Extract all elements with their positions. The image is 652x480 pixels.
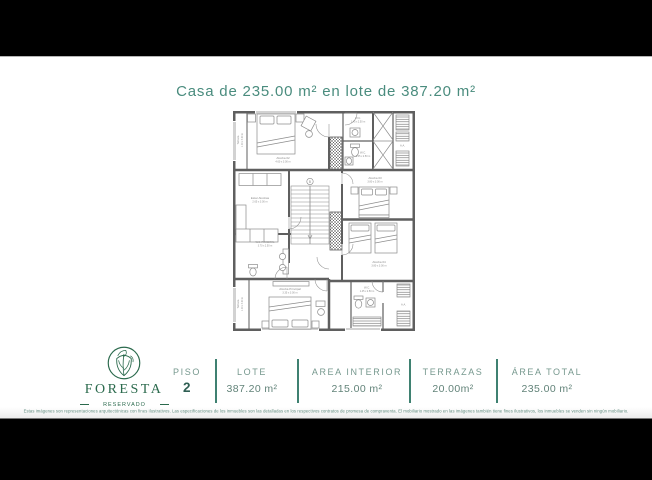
brand-subtitle: RESERVADO [103, 401, 146, 407]
slide-content: Casa de 235.00 m² en lote de 387.20 m² [0, 56, 652, 419]
floor-plan: Terraza 1.00 x 3.00 m Alcoba 02 4.60 x 3… [233, 111, 415, 331]
label-wc-mid-dims: 1.45 x 2.50 m [356, 155, 371, 158]
label-wc-principal-dims: 3.70 x 2.50 m [258, 245, 273, 248]
divider-3 [409, 359, 411, 403]
piso-label: PISO [173, 367, 201, 377]
summary-col-area-interior: AREA INTERIOR 215.00 m² [312, 367, 402, 395]
label-aa-top: A.A. [400, 144, 405, 148]
area-interior-value: 215.00 m² [312, 383, 402, 395]
label-wc-principal: W.C. PRINCIPAL [255, 241, 275, 244]
label-alcoba-03: Alcoba 03 [368, 176, 382, 180]
brand-subtitle-row: RESERVADO [78, 400, 170, 409]
label-wc-top-dims: 1.45 x 2.50 m [351, 120, 366, 123]
stairs [291, 186, 329, 244]
label-terraza-top: Terraza [236, 135, 240, 144]
subtitle-rule-left [80, 404, 89, 405]
summary-col-piso: PISO 2 [173, 367, 201, 395]
piso-value: 2 [173, 380, 201, 395]
subtitle-rule-right [160, 404, 169, 405]
area-total-value: 235.00 m² [512, 383, 583, 395]
label-terraza-top-dims: 1.00 x 3.00 m [242, 133, 244, 147]
summary-col-lote: LOTE 387.20 m² [227, 367, 278, 395]
label-terraza-bottom: Terraza [236, 299, 240, 308]
label-alcoba-02: Alcoba 02 [276, 156, 290, 160]
summary-col-area-total: ÁREA TOTAL 235.00 m² [512, 367, 583, 395]
label-estar: Estar Alcobas [251, 196, 270, 200]
disclaimer-text: Estas imágenes son representaciones arqu… [24, 409, 629, 414]
divider-1 [215, 359, 217, 403]
terrazas-value: 20.00m² [423, 383, 484, 395]
brand-name: FORESTA [78, 382, 170, 398]
area-total-label: ÁREA TOTAL [512, 367, 583, 377]
divider-2 [297, 359, 299, 403]
label-wc-bottom-dims: 1.45 x 2.50 m [360, 290, 375, 293]
marker-b: B [309, 180, 311, 184]
label-alcoba-04: Alcoba 04 [372, 260, 386, 264]
plan-shafts [330, 137, 342, 250]
terrazas-label: TERRAZAS [423, 367, 484, 377]
area-interior-label: AREA INTERIOR [312, 367, 402, 377]
summary-col-terrazas: TERRAZAS 20.00m² [423, 367, 484, 395]
label-wc-mid: W.C. [360, 151, 366, 155]
page-title: Casa de 235.00 m² en lote de 387.20 m² [0, 83, 652, 100]
label-alcoba-principal-dims: 3.35 x 3.00 m [282, 292, 297, 295]
label-alcoba-principal: Alcoba Principal [279, 287, 301, 291]
lote-label: LOTE [227, 367, 278, 377]
label-aa-bottom: A.A. [401, 303, 406, 307]
label-alcoba-04-dims: 3.80 x 3.00 m [371, 265, 386, 268]
foresta-emblem-icon [106, 345, 142, 381]
floor-plan-svg: Terraza 1.00 x 3.00 m Alcoba 02 4.60 x 3… [233, 111, 415, 331]
label-alcoba-03-dims: 3.80 x 3.00 m [367, 181, 382, 184]
brand-logo: FORESTA RESERVADO [78, 345, 170, 409]
label-alcoba-02-dims: 4.60 x 3.00 m [275, 161, 290, 164]
divider-4 [496, 359, 498, 403]
label-terraza-bottom-dims: 1.00 x 3.00 m [242, 297, 244, 311]
label-wc-bottom: W.C. [364, 286, 370, 290]
label-estar-dims: 2.65 x 3.00 m [252, 201, 267, 204]
label-wc-top: W.C. [355, 116, 361, 120]
lote-value: 387.20 m² [227, 383, 278, 395]
